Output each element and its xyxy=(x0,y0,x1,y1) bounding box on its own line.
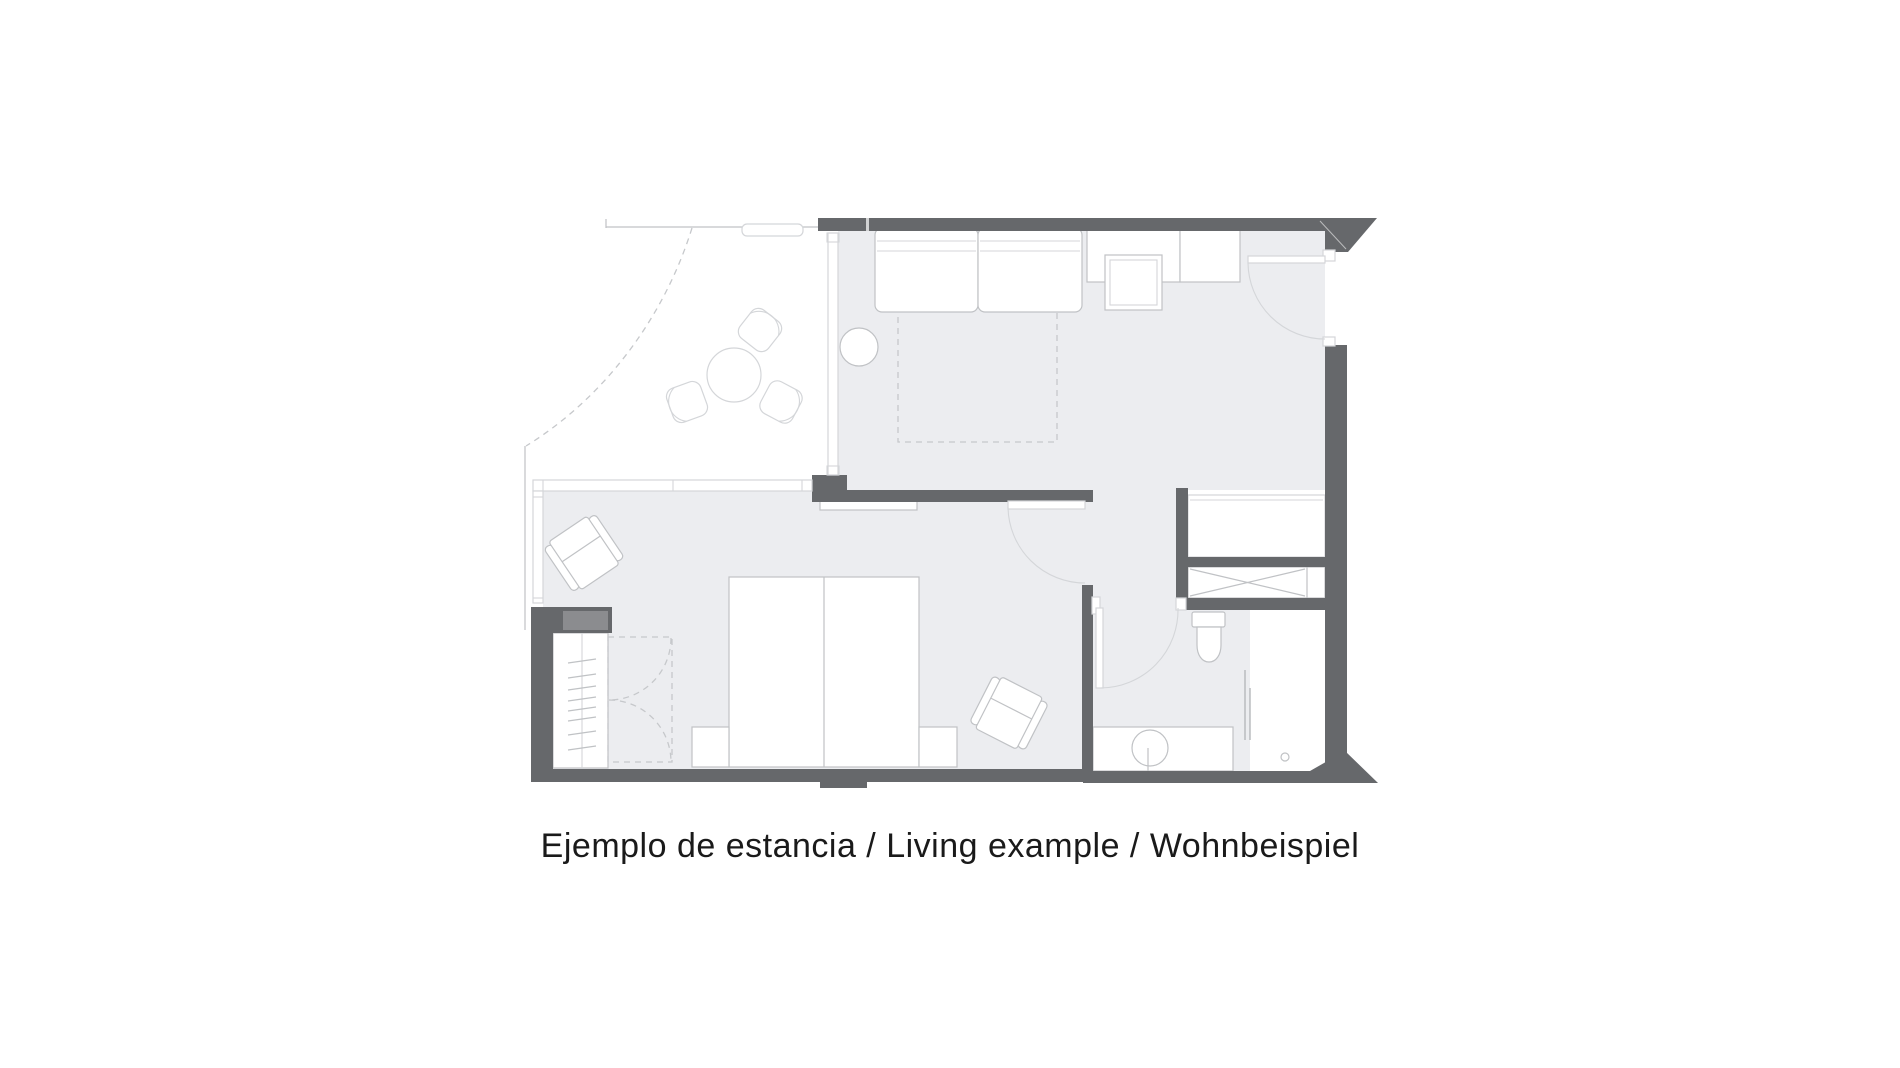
shaft-bottom-wall xyxy=(1180,598,1325,610)
nightstand-left xyxy=(692,727,729,767)
entry-column xyxy=(1188,495,1325,598)
terrace-chair-north xyxy=(735,305,786,356)
duct-shaft xyxy=(1188,567,1325,598)
bathroom-door-leaf xyxy=(1096,608,1103,688)
shower-floor xyxy=(1250,608,1325,771)
bedroom-door-leaf xyxy=(1008,501,1085,509)
terrace-chair-east xyxy=(757,378,806,427)
living-bedroom-wall xyxy=(847,490,1093,502)
page: Ejemplo de estancia / Living example / W… xyxy=(0,0,1900,1068)
wall-joint xyxy=(866,218,869,231)
bottom-exterior-wall-west xyxy=(531,769,1083,782)
floor-plan xyxy=(0,0,1900,1068)
bedroom-hall-wall xyxy=(1082,585,1093,782)
left-exterior-wall xyxy=(531,607,553,782)
terrace-planter xyxy=(742,224,803,236)
niche-bottom-wall xyxy=(1185,557,1325,567)
hall-floor xyxy=(1093,490,1176,608)
double-bed xyxy=(729,577,919,767)
overhang-dashed-curve xyxy=(526,228,692,446)
side-table xyxy=(840,328,878,366)
bedroom-terrace-window xyxy=(533,480,812,491)
nightstand-right xyxy=(919,727,957,767)
right-exterior-wall xyxy=(1325,345,1347,773)
top-right-corner-wedge xyxy=(1317,218,1377,252)
window-pier-block xyxy=(812,475,847,502)
bottom-exterior-wall-east xyxy=(1083,771,1326,783)
wardrobe xyxy=(553,633,608,768)
entrance-door-jamb-bottom xyxy=(1323,337,1335,346)
bottom-wall-pier xyxy=(820,769,867,788)
plan-caption: Ejemplo de estancia / Living example / W… xyxy=(0,827,1900,866)
entry-closet xyxy=(1180,227,1240,282)
terrace-table xyxy=(707,348,761,402)
ottoman xyxy=(1105,255,1162,310)
sofa xyxy=(875,228,1082,312)
washbasin-counter xyxy=(1093,727,1233,771)
bedroom-doorway-floor xyxy=(1082,502,1093,585)
living-room-window xyxy=(827,233,839,475)
entrance-wardrobe-niche xyxy=(1188,495,1325,557)
entrance-door-leaf xyxy=(1248,256,1325,263)
terrace-chair-west xyxy=(664,379,710,425)
bedroom-left-window xyxy=(533,491,543,603)
hall-shaft-wall xyxy=(1176,488,1188,608)
bedroom-corner-inset xyxy=(563,611,608,630)
top-exterior-wall xyxy=(818,218,1317,231)
